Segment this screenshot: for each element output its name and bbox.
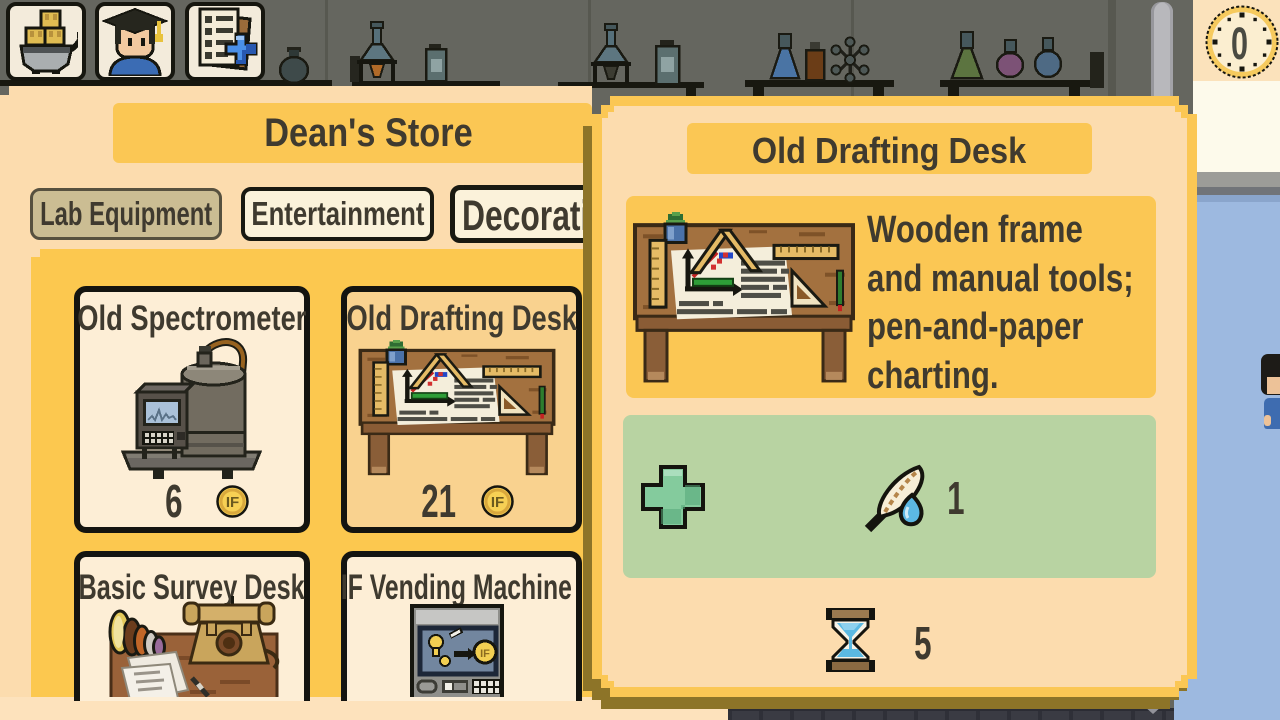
svg-text:IF: IF xyxy=(480,648,490,660)
svg-text:IF: IF xyxy=(226,494,239,511)
svg-text:IF: IF xyxy=(491,494,504,511)
